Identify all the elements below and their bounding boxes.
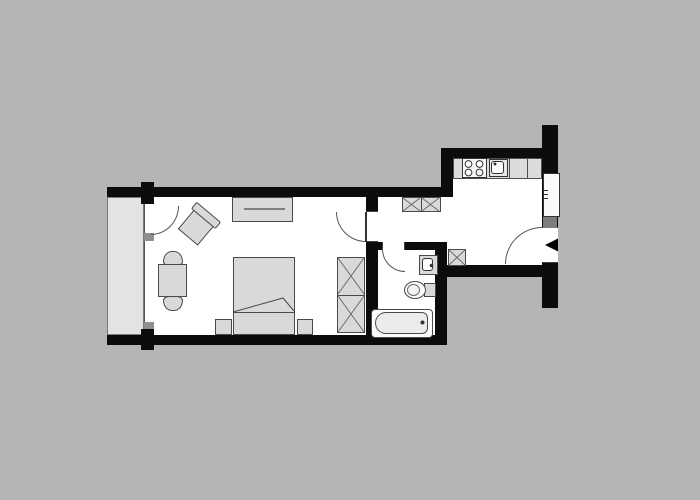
panel-tick-3 [544, 198, 548, 199]
shaft-box [448, 249, 466, 266]
kitchen-sink-unit [489, 159, 508, 177]
toilet-bowl [404, 281, 426, 299]
panel-tick-2 [544, 194, 548, 195]
kitchen-sink-basin [491, 161, 504, 174]
room-door-leaf [365, 212, 367, 242]
bathtub-inner [375, 312, 428, 334]
room-door-jamb-bottom [366, 241, 378, 242]
counter-divider-2 [527, 159, 528, 178]
floor-entrance-gap [542, 228, 558, 263]
wall-bedroom-stub [366, 187, 378, 212]
sideboard [232, 197, 293, 222]
wall-top-overhang [107, 187, 143, 197]
balcony-slab [107, 197, 144, 335]
hall-wardrobe-divider [421, 198, 422, 211]
wall-bathroom-top-right [405, 242, 435, 250]
wardrobe [337, 257, 365, 333]
toilet-bowl-inner [407, 284, 420, 296]
nightstand-left [215, 319, 232, 335]
wall-kitchen-top [441, 148, 544, 158]
entrance-jamb-bottom [542, 262, 558, 263]
entrance-frame-block [543, 217, 557, 228]
washbasin-inner [422, 258, 433, 271]
counter-divider-1 [509, 159, 510, 178]
wall-bathroom-top-left [374, 242, 382, 250]
wall-top-cap [141, 182, 154, 204]
entrance-door-panel [543, 173, 560, 217]
bed-divider-line [234, 312, 294, 313]
hall-wardrobe [402, 197, 441, 212]
panel-tick-1 [544, 190, 548, 191]
wardrobe-divider [338, 295, 364, 296]
sideboard-handle [244, 208, 285, 210]
wall-hall-bottom [441, 265, 558, 277]
wall-top-main [154, 187, 448, 197]
cooktop [462, 158, 487, 178]
washbasin [419, 255, 438, 275]
floor-plan-canvas [0, 0, 700, 500]
bed [233, 257, 295, 335]
nightstand-right [297, 319, 313, 335]
bathtub [371, 309, 433, 338]
wall-bottom-overhang [107, 335, 143, 345]
dining-table [158, 264, 187, 297]
room-door-jamb-top [366, 211, 378, 212]
